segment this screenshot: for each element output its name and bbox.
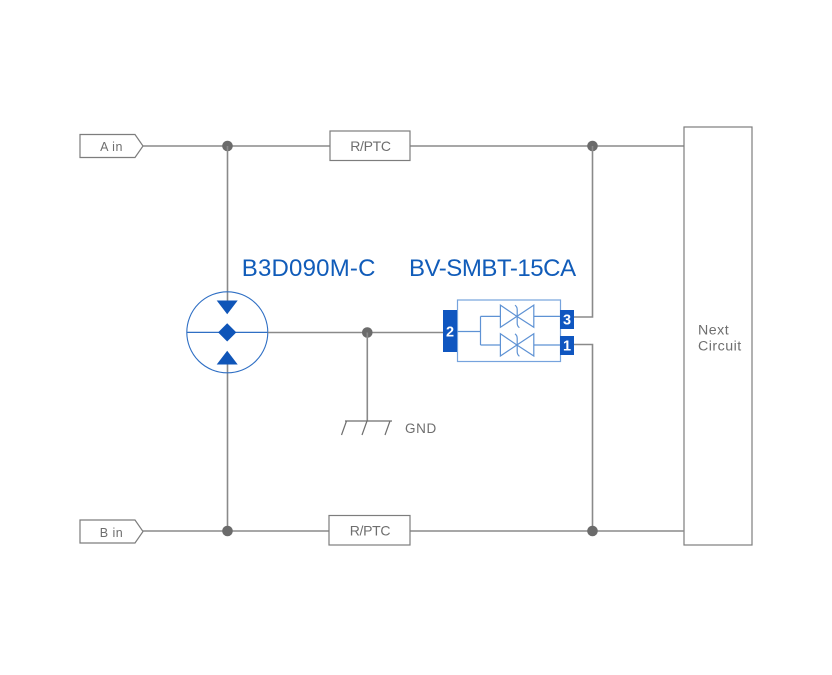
svg-text:2: 2 — [446, 325, 454, 341]
svg-text:B in: B in — [100, 526, 124, 540]
svg-text:Circuit: Circuit — [698, 339, 742, 355]
svg-text:R/PTC: R/PTC — [350, 138, 391, 154]
svg-text:R/PTC: R/PTC — [350, 522, 391, 538]
svg-text:A in: A in — [100, 140, 123, 154]
svg-text:1: 1 — [563, 339, 571, 355]
svg-text:B3D090M-C: B3D090M-C — [242, 255, 376, 282]
svg-text:3: 3 — [563, 313, 571, 329]
svg-text:Next: Next — [698, 323, 729, 339]
svg-text:BV-SMBT-15CA: BV-SMBT-15CA — [409, 255, 576, 282]
svg-text:GND: GND — [405, 421, 437, 436]
